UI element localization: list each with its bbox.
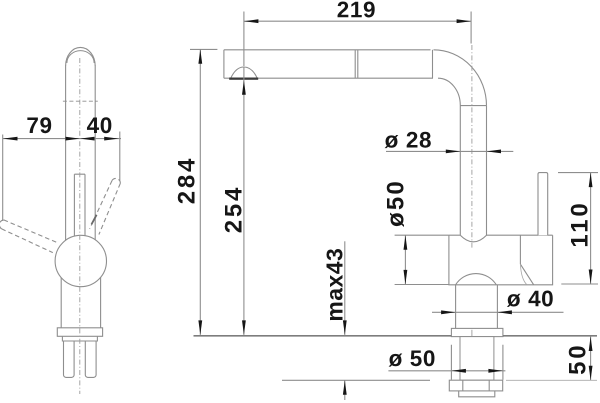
svg-text:254: 254 xyxy=(221,185,248,233)
svg-text:ø50: ø50 xyxy=(383,179,410,227)
svg-text:79: 79 xyxy=(26,113,52,138)
svg-text:40: 40 xyxy=(87,113,113,138)
svg-text:ø 40: ø 40 xyxy=(507,286,554,311)
svg-text:ø 50: ø 50 xyxy=(389,346,436,371)
svg-text:max43: max43 xyxy=(321,248,347,322)
svg-text:284: 284 xyxy=(174,156,201,204)
svg-text:ø 28: ø 28 xyxy=(385,127,432,152)
svg-text:219: 219 xyxy=(337,0,376,22)
svg-text:110: 110 xyxy=(566,200,593,247)
svg-text:50: 50 xyxy=(565,343,592,375)
